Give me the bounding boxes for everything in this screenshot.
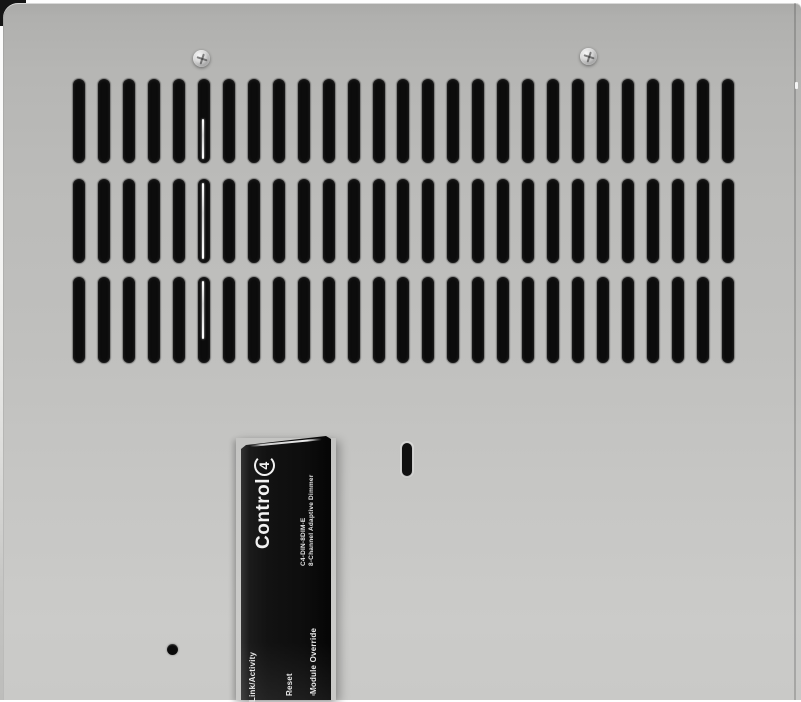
vent-slot (597, 79, 609, 163)
vent-slot (223, 79, 235, 163)
vent-slot (173, 179, 185, 263)
vent-slot (223, 277, 235, 363)
label-link-activity: Link/Activity (248, 652, 257, 702)
vent-slot (597, 179, 609, 263)
vent-slot (647, 179, 659, 263)
vent-slot (647, 79, 659, 163)
device-photo: Control4 C4-DIN-8DIM-E 8-Channel Adaptiv… (0, 0, 801, 700)
vent-slot (198, 179, 210, 263)
vent-slot (148, 179, 160, 263)
model-number: C4-DIN-8DIM-E (300, 475, 308, 566)
vent-slot (447, 179, 459, 263)
vent-slot (373, 277, 385, 363)
vent-slot (73, 179, 85, 263)
vertical-slot-opening (402, 443, 412, 476)
vent-slot (173, 79, 185, 163)
vent-reflection (202, 183, 204, 259)
vent-slot (373, 179, 385, 263)
vent-slot (223, 179, 235, 263)
vent-slot (348, 277, 360, 363)
panel-edge-notch (795, 82, 798, 89)
vent-slot (298, 277, 310, 363)
vent-slot (348, 79, 360, 163)
vent-slot (497, 179, 509, 263)
mounting-screw-left (193, 50, 210, 67)
brand-numeral: 4 (256, 461, 272, 469)
vent-slot (572, 277, 584, 363)
vent-slot (622, 79, 634, 163)
vent-slot (672, 179, 684, 263)
vent-slot (198, 79, 210, 163)
vent-slot (472, 79, 484, 163)
vent-slot (522, 179, 534, 263)
vent-slot (98, 277, 110, 363)
vent-slot (497, 79, 509, 163)
vent-slot (273, 79, 285, 163)
vent-slot (348, 179, 360, 263)
vent-slot (547, 79, 559, 163)
vent-slot (647, 277, 659, 363)
vent-slot (672, 277, 684, 363)
control4-logo: Control4 (253, 455, 275, 549)
vent-slot (323, 79, 335, 163)
vent-slot (123, 179, 135, 263)
vent-slot (298, 79, 310, 163)
vent-slot (722, 79, 734, 163)
vent-reflection (202, 119, 204, 159)
vent-slot (447, 79, 459, 163)
brand-numeral-ring: 4 (254, 455, 275, 476)
vent-slot (572, 179, 584, 263)
vent-slot (198, 277, 210, 363)
vent-slot (273, 179, 285, 263)
vent-slot (397, 79, 409, 163)
brand-text: Control (253, 478, 275, 549)
vent-slot (148, 277, 160, 363)
vent-slot (522, 277, 534, 363)
vent-reflection (202, 281, 204, 339)
vent-slot (447, 277, 459, 363)
vent-slot (248, 179, 260, 263)
vent-slot (373, 79, 385, 163)
vent-slot (173, 277, 185, 363)
vent-slot (547, 277, 559, 363)
mounting-screw-right (580, 48, 597, 65)
vent-slot (697, 277, 709, 363)
vent-slot (148, 79, 160, 163)
panel-right-edge (794, 3, 796, 700)
vent-slot (98, 79, 110, 163)
vent-slot (622, 179, 634, 263)
override-indicator-dot (312, 693, 315, 696)
vent-slot (273, 277, 285, 363)
vent-slot (697, 79, 709, 163)
vent-slot (298, 179, 310, 263)
vent-slot (597, 277, 609, 363)
vent-slot (547, 179, 559, 263)
vent-slot (622, 277, 634, 363)
vent-slot (672, 79, 684, 163)
vent-slot (323, 277, 335, 363)
vent-slot (572, 79, 584, 163)
vent-slot (722, 179, 734, 263)
vent-slot (98, 179, 110, 263)
label-module-override: Module Override (309, 628, 318, 694)
vent-slot (397, 179, 409, 263)
vent-slot (522, 79, 534, 163)
vent-slot (422, 277, 434, 363)
vent-slot (248, 277, 260, 363)
vent-slot (697, 179, 709, 263)
vent-slot (123, 79, 135, 163)
vent-slot (472, 277, 484, 363)
model-description: 8-Channel Adaptive Dimmer (308, 475, 316, 566)
model-block: C4-DIN-8DIM-E 8-Channel Adaptive Dimmer (300, 475, 316, 566)
vent-slot (422, 79, 434, 163)
vent-slot (422, 179, 434, 263)
override-indicator-dot (312, 687, 315, 690)
reset-indicator-dot (289, 690, 292, 693)
vent-slot (248, 79, 260, 163)
vent-slot (123, 277, 135, 363)
vent-slot (472, 179, 484, 263)
vent-slot (73, 79, 85, 163)
vent-slot (497, 277, 509, 363)
pilot-hole (167, 644, 178, 655)
vent-slot (397, 277, 409, 363)
vent-slot (323, 179, 335, 263)
vent-slot (73, 277, 85, 363)
vent-slot (722, 277, 734, 363)
